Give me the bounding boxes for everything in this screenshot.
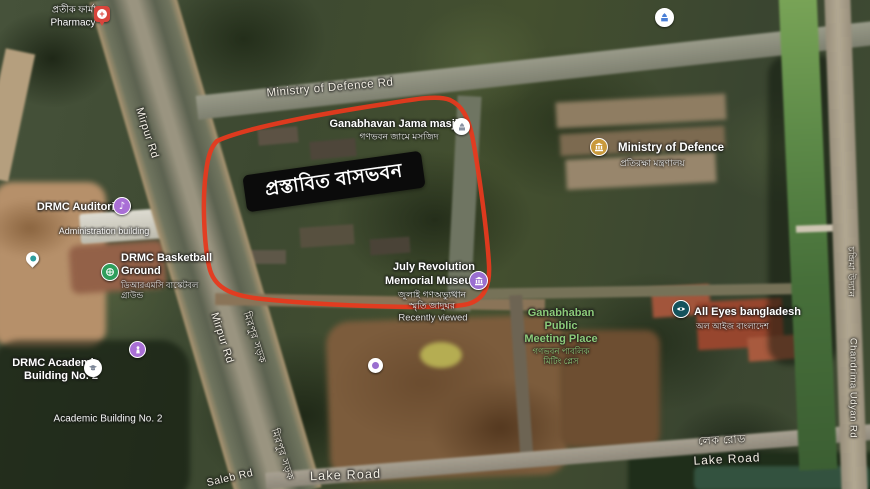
monument-icon[interactable]	[129, 341, 146, 358]
place-dot-pin-icon[interactable]	[368, 358, 383, 373]
road-left-edge	[0, 48, 35, 181]
academic-building-2-label: Academic Building No. 2	[54, 414, 163, 425]
proposed-area-label: প্রস্তাবিত বাসভবন	[242, 151, 425, 213]
road-label-mirpur-rd-bn-1: মিরপুর সড়ক	[237, 310, 270, 366]
mosque-icon[interactable]	[453, 118, 470, 135]
eye-icon[interactable]	[672, 300, 690, 318]
drmc-basketball-label-bn-2: গ্রাউন্ড	[121, 289, 143, 303]
july-museum-label-2[interactable]: Memorial Museum	[385, 275, 481, 287]
satellite-map[interactable]: প্রস্তাবিত বাসভবন প্রতীক ফার্মা Pharmacy…	[0, 0, 870, 489]
july-museum-label-bn-2: স্মৃতি জাদুঘর	[409, 299, 455, 314]
july-museum-label-1[interactable]: July Revolution	[393, 261, 475, 273]
proposed-area-label-text: প্রস্তাবিত বাসভবন	[263, 156, 405, 207]
ganabhaban-meeting-label-bn-2: মিটিং প্লেস	[543, 355, 578, 369]
ganabhaban-meeting-label-2[interactable]: Public	[544, 320, 577, 332]
performing-arts-icon[interactable]: ♪	[113, 197, 131, 215]
terrain-building-5	[250, 250, 286, 264]
terrain-building-1	[257, 126, 298, 145]
terrain-dark-trees-right	[768, 55, 838, 365]
ganabhaban-meeting-label-3[interactable]: Meeting Place	[524, 333, 597, 345]
all-eyes-label-bn: অল আইজ বাংলাদেশ	[696, 320, 769, 334]
terrain-ministry-block-1	[555, 94, 726, 129]
road-ministry-of-defence	[196, 20, 870, 120]
road-label-mirpur-rd-bn-2: মিরপুর সড়ক	[265, 427, 298, 483]
all-eyes-label[interactable]: All Eyes bangladesh	[694, 306, 801, 318]
terrain-pond	[694, 466, 870, 489]
canal-chandrima	[779, 0, 838, 471]
road-label-lake-road-right: Lake Road	[693, 450, 761, 467]
road-vertical-fields	[509, 295, 534, 465]
canal-bridge	[796, 224, 836, 232]
road-dirt-south-of-area	[215, 293, 545, 311]
road-label-lake-road-center: Lake Road	[310, 467, 382, 483]
road-chandrima-udyan	[824, 0, 867, 489]
pharmacy-label-bn[interactable]: প্রতীক ফার্মা	[52, 4, 96, 19]
basketball-icon[interactable]	[101, 263, 119, 281]
road-east-west	[460, 283, 805, 300]
drmc-basketball-label-1[interactable]: DRMC Basketball	[121, 252, 212, 264]
pharmacy-pin-icon[interactable]: +	[94, 6, 110, 22]
masjid-label-bn: গণভবন জামে মসজিদ	[359, 130, 438, 145]
terrain-terracotta-3	[747, 334, 801, 362]
government-building-icon[interactable]	[590, 138, 608, 156]
july-museum-recently-viewed: Recently viewed	[398, 313, 467, 324]
pharmacy-label-en[interactable]: Pharmacy	[50, 18, 95, 29]
drmc-basketball-label-2[interactable]: Ground	[121, 265, 161, 277]
road-label-lake-road-bn: লেক রোড	[698, 430, 747, 451]
ministry-of-defence-label[interactable]: Ministry of Defence	[618, 142, 724, 154]
road-label-ministry-of-defence-rd: Ministry of Defence Rd	[266, 76, 394, 99]
map-pin-icon[interactable]	[23, 249, 41, 267]
mosque-icon-blue[interactable]	[655, 8, 674, 27]
museum-icon[interactable]	[469, 271, 488, 290]
road-label-saleb-rd: Saleb Rd	[206, 467, 255, 489]
terrain-building-2	[309, 138, 356, 160]
masjid-label[interactable]: Ganabhavan Jama masjid	[329, 118, 464, 130]
road-label-mirpur-rd-1: Mirpur Rd	[133, 106, 161, 160]
terrain-algae-patch	[420, 342, 462, 368]
ganabhaban-meeting-label-1[interactable]: Ganabhaban	[528, 307, 595, 319]
road-label-chandrima-udyan-rd: Chandrima Udyan Rd	[848, 338, 859, 438]
road-label-chandrima-bn: চন্দ্রিমা উদ্যান	[844, 247, 859, 298]
ministry-of-defence-label-bn: প্রতিরক্ষা মন্ত্রণালয়	[620, 156, 685, 171]
terrain-building-3	[299, 224, 354, 248]
administration-building-label: Administration building	[59, 226, 150, 236]
school-icon[interactable]	[84, 359, 102, 377]
terrain-building-4	[369, 237, 410, 256]
road-label-mirpur-rd-2: Mirpur Rd	[208, 311, 236, 365]
